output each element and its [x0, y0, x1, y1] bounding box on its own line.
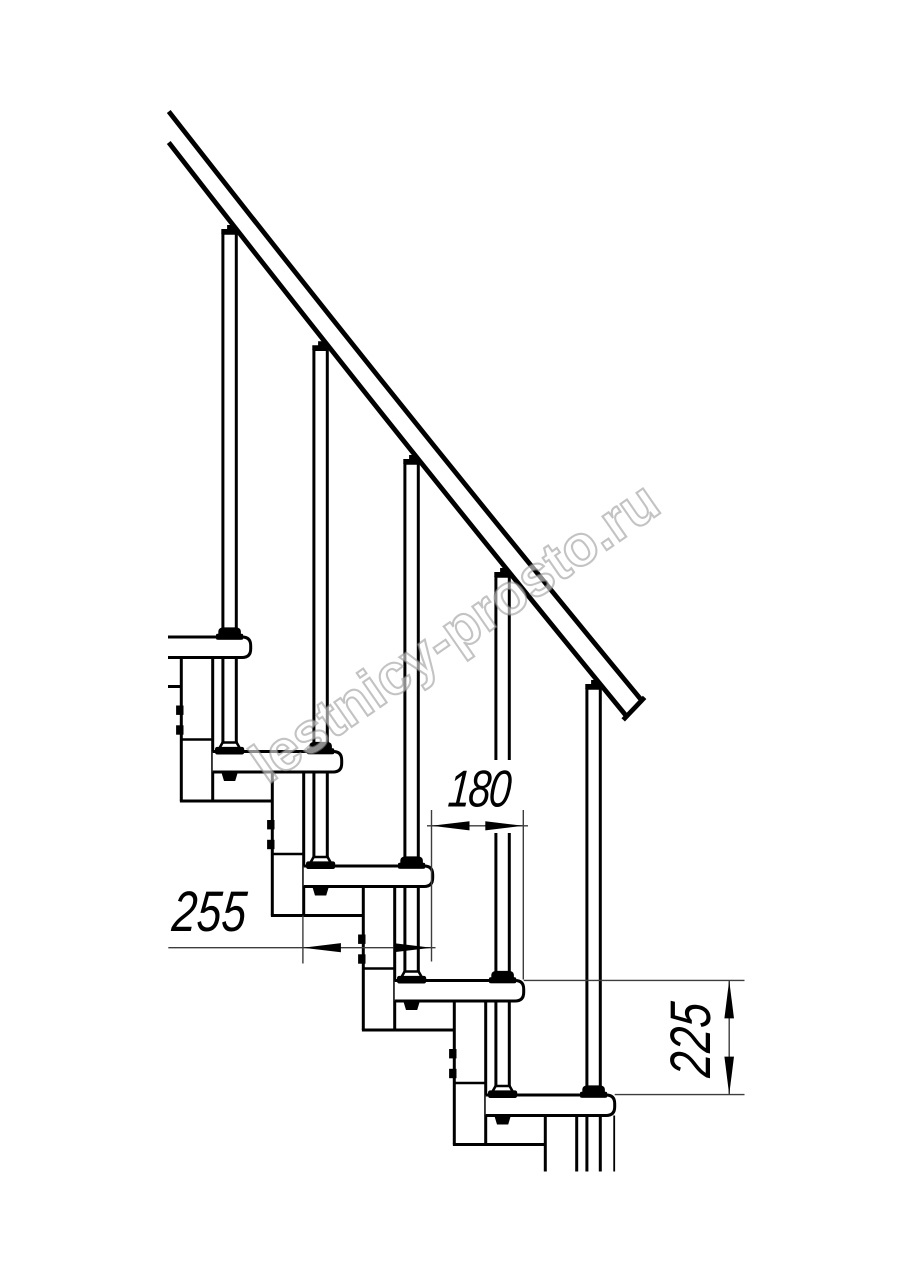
- svg-text:255: 255: [169, 880, 249, 944]
- svg-text:180: 180: [446, 760, 514, 818]
- svg-text:225: 225: [659, 999, 723, 1079]
